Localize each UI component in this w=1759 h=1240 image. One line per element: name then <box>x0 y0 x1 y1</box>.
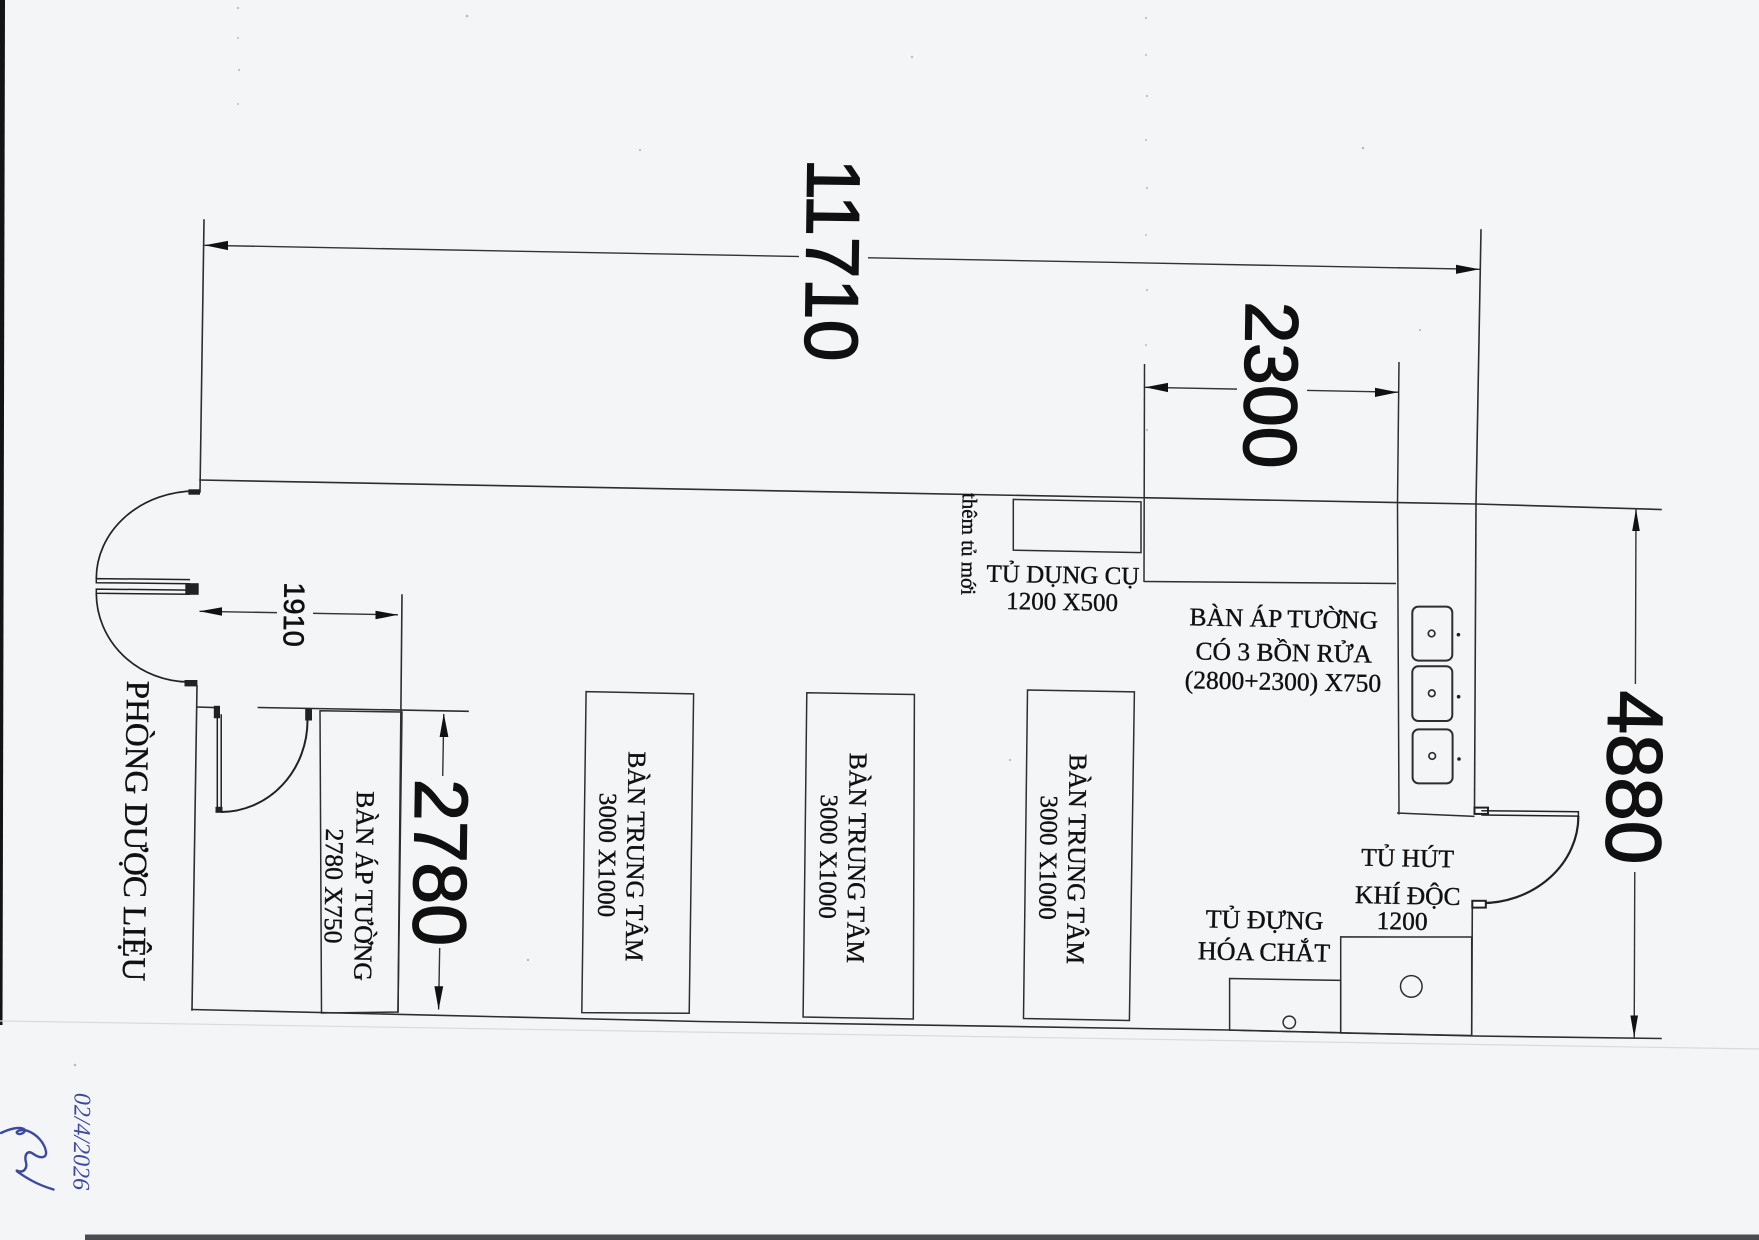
svg-text:11710: 11710 <box>789 158 876 362</box>
svg-text:PHÒNG DƯỢC LIỆU: PHÒNG DƯỢC LIỆU <box>115 680 157 981</box>
svg-text:HÓA CHẮT: HÓA CHẮT <box>1198 936 1331 967</box>
svg-text:2780 X750: 2780 X750 <box>318 828 349 943</box>
svg-text:1200: 1200 <box>1376 906 1428 936</box>
svg-text:1910: 1910 <box>277 582 310 647</box>
svg-text:3000 X1000: 3000 X1000 <box>1033 795 1062 920</box>
svg-text:BÀN TRUNG TÂM: BÀN TRUNG TÂM <box>841 753 873 964</box>
svg-text:TỦ ĐỰNG: TỦ ĐỰNG <box>1205 904 1323 935</box>
svg-text:BÀN TRUNG TÂM: BÀN TRUNG TÂM <box>620 751 652 962</box>
svg-text:CÓ 3 BỒN RỬA: CÓ 3 BỒN RỬA <box>1195 636 1372 668</box>
svg-text:thêm tủ mới: thêm tủ mới <box>956 493 981 596</box>
svg-text:BÀN TRUNG TÂM: BÀN TRUNG TÂM <box>1061 754 1093 965</box>
svg-text:BÀN ÁP TƯỜNG: BÀN ÁP TƯỜNG <box>348 791 380 981</box>
svg-text:3000 X1000: 3000 X1000 <box>813 794 842 919</box>
svg-text:TỦ HÚT: TỦ HÚT <box>1361 843 1455 874</box>
svg-text:(2800+2300) X750: (2800+2300) X750 <box>1185 665 1382 698</box>
svg-text:2300: 2300 <box>1228 301 1314 469</box>
svg-text:2780: 2780 <box>397 778 483 946</box>
svg-text:3000 X1000: 3000 X1000 <box>592 793 621 918</box>
svg-text:1200 X500: 1200 X500 <box>1006 588 1118 617</box>
svg-text:BÀN ÁP TƯỜNG: BÀN ÁP TƯỜNG <box>1189 602 1378 634</box>
svg-text:TỦ DỤNG CỤ: TỦ DỤNG CỤ <box>986 560 1139 591</box>
svg-text:02/4/2026: 02/4/2026 <box>67 1093 94 1191</box>
svg-text:4880: 4880 <box>1589 690 1679 865</box>
